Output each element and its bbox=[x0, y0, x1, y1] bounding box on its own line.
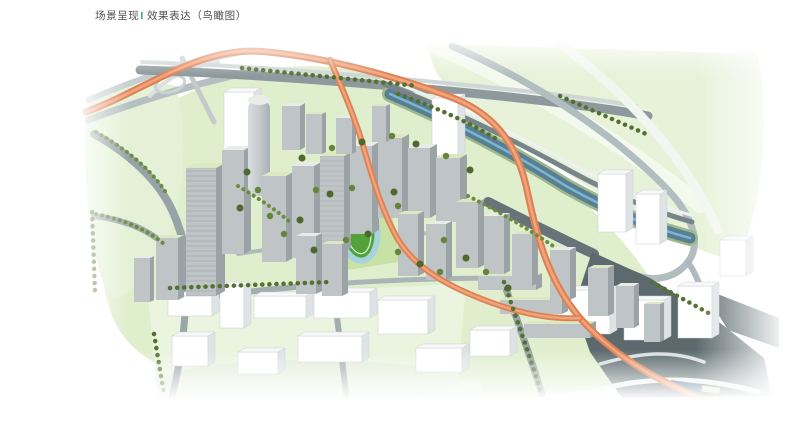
tower bbox=[222, 146, 251, 254]
tower bbox=[322, 241, 348, 296]
tower bbox=[372, 104, 390, 142]
building-block bbox=[254, 292, 313, 318]
building-block bbox=[598, 170, 633, 232]
tower bbox=[306, 112, 326, 154]
title-suffix: 效果表达（鸟瞰图） bbox=[147, 10, 247, 22]
tower bbox=[616, 283, 639, 328]
building-block bbox=[378, 296, 435, 334]
tower bbox=[456, 199, 484, 268]
presentation-slide: 场景呈现I效果表达（鸟瞰图） bbox=[0, 0, 800, 440]
tower bbox=[186, 163, 225, 296]
aerial-rendering bbox=[0, 0, 800, 440]
tower bbox=[484, 213, 510, 274]
tower bbox=[156, 235, 184, 300]
tower bbox=[282, 103, 305, 150]
tower bbox=[408, 144, 437, 218]
tower bbox=[296, 233, 322, 294]
title-separator: I bbox=[140, 10, 144, 22]
tower bbox=[644, 302, 664, 342]
building-block bbox=[636, 190, 667, 244]
tower bbox=[262, 172, 293, 262]
tower bbox=[512, 231, 538, 286]
tower bbox=[588, 265, 614, 316]
title-prefix: 场景呈现 bbox=[95, 10, 139, 22]
tower bbox=[134, 256, 154, 302]
page-title: 场景呈现I效果表达（鸟瞰图） bbox=[95, 9, 247, 25]
